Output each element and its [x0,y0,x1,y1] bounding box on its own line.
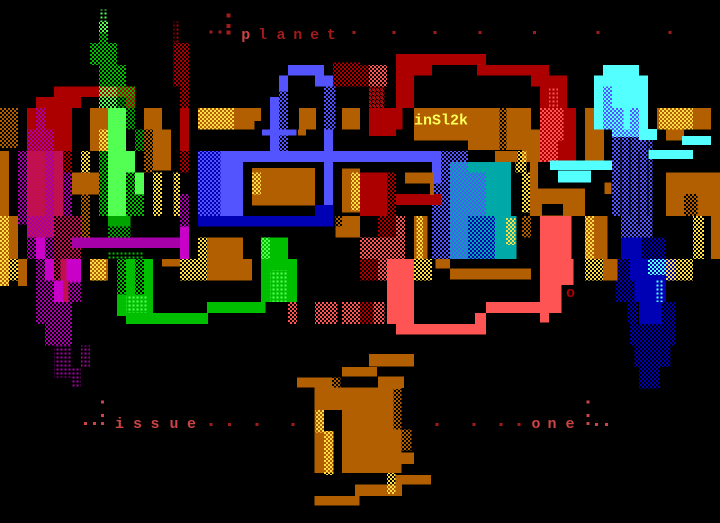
svg-text:s: s [151,416,160,433]
svg-text:o: o [532,416,541,433]
svg-text:u: u [170,416,179,433]
svg-text:n: n [548,416,557,433]
svg-text:n: n [293,27,302,44]
svg-text:e: e [310,27,319,44]
svg-text:e: e [187,416,196,433]
svg-text:inSl2k: inSl2k [414,113,468,130]
svg-text:l: l [258,27,267,44]
svg-text:e: e [566,416,575,433]
svg-text:s: s [133,416,142,433]
svg-text:p: p [241,27,250,44]
svg-text:a: a [277,27,286,44]
svg-text:t: t [327,27,336,44]
svg-text:o: o [566,285,575,302]
svg-text:i: i [115,416,124,433]
